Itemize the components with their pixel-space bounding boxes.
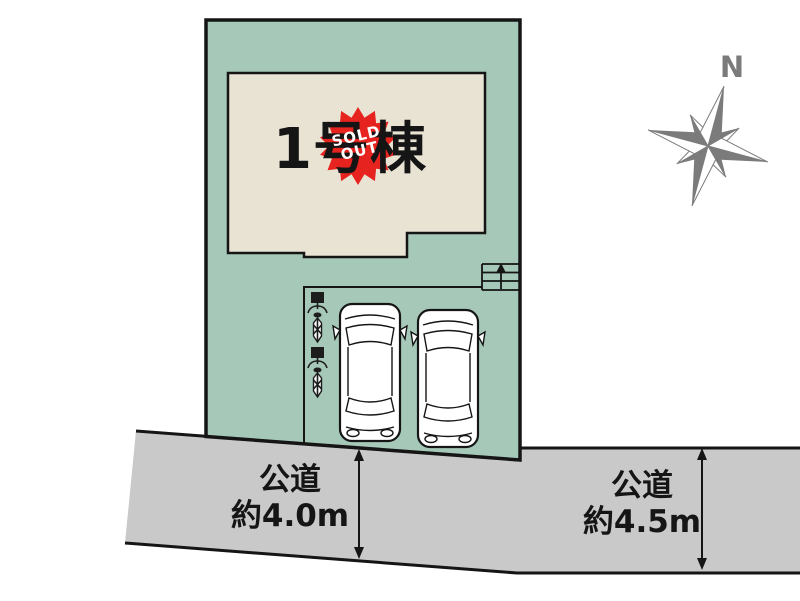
road-left-name: 公道 — [228, 462, 352, 498]
road-left-width: 約4.0m — [228, 498, 352, 534]
car-icon — [411, 310, 485, 447]
compass-north-label: N — [712, 50, 752, 84]
road-right-width: 約4.5m — [580, 504, 704, 540]
road-right-name: 公道 — [580, 468, 704, 504]
site-plan: 1号棟 SOLD OUT N 公道 約4.0m 公道 約4.5m — [0, 0, 800, 601]
car-icon — [333, 304, 407, 441]
road-width-label-left: 公道 約4.0m — [228, 462, 352, 534]
compass-rose-icon — [632, 70, 784, 222]
road-width-label-right: 公道 約4.5m — [580, 468, 704, 540]
